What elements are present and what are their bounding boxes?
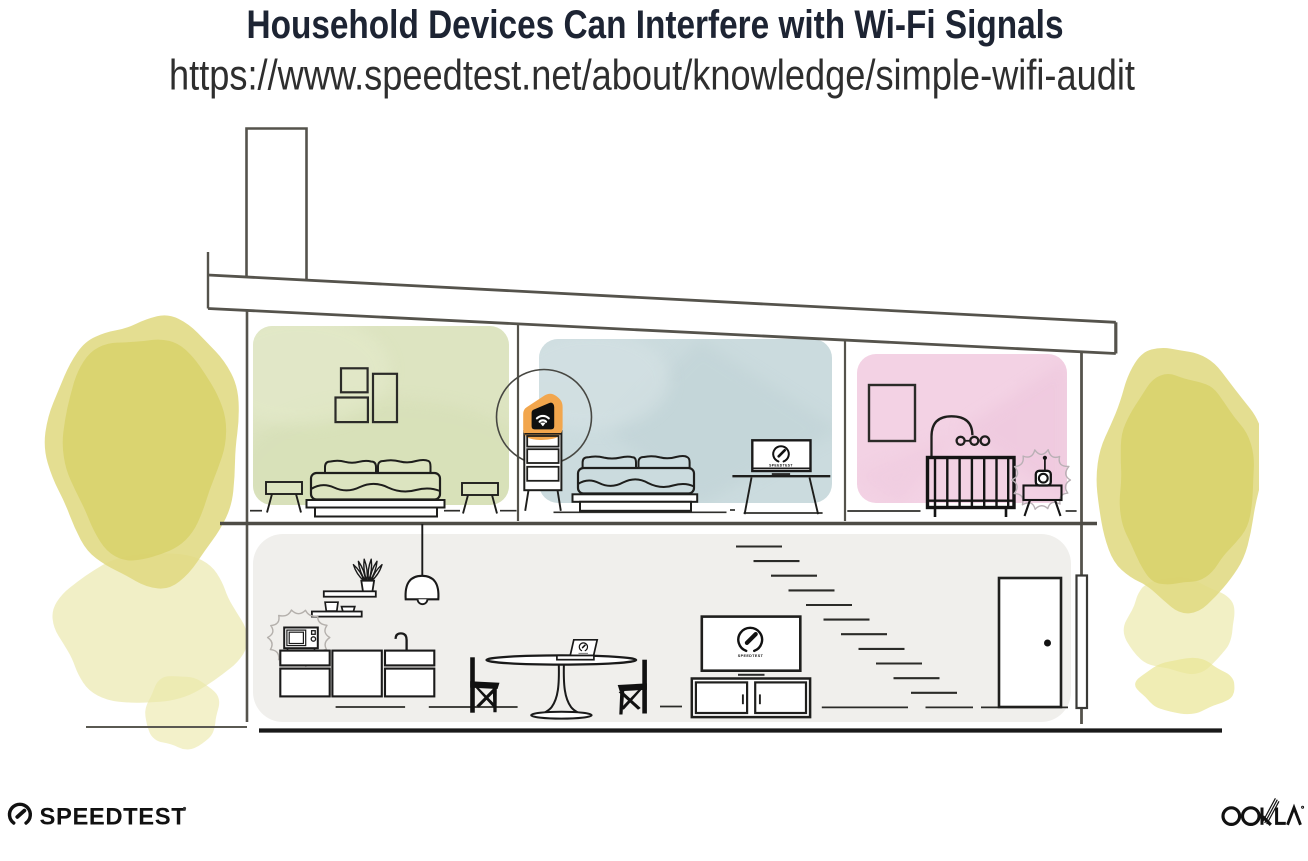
svg-text:Household Devices Can Interfer: Household Devices Can Interfere with Wi-… [247, 3, 1064, 47]
svg-text:SPEEDTEST: SPEEDTEST [40, 803, 187, 830]
svg-text:https://www.speedtest.net/abou: https://www.speedtest.net/about/knowledg… [169, 52, 1135, 100]
svg-text:SPEEDTEST: SPEEDTEST [738, 654, 764, 658]
svg-text:SPEEDTEST: SPEEDTEST [769, 463, 793, 467]
